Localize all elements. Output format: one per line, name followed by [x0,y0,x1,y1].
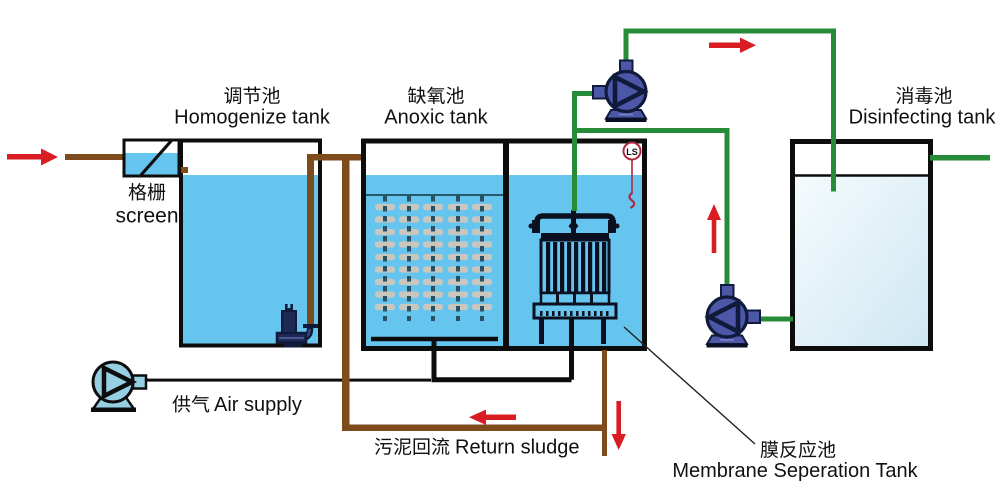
svg-text:Anoxic tank: Anoxic tank [384,107,488,129]
svg-text:screen: screen [115,205,178,228]
svg-text:Membrane Seperation Tank: Membrane Seperation Tank [672,460,918,482]
svg-text:Air supply: Air supply [214,394,302,416]
svg-text:Disinfecting tank: Disinfecting tank [849,107,997,129]
svg-text:Homogenize tank: Homogenize tank [174,107,331,129]
svg-text:Return sludge: Return sludge [455,437,580,459]
svg-text:LS: LS [626,147,638,157]
